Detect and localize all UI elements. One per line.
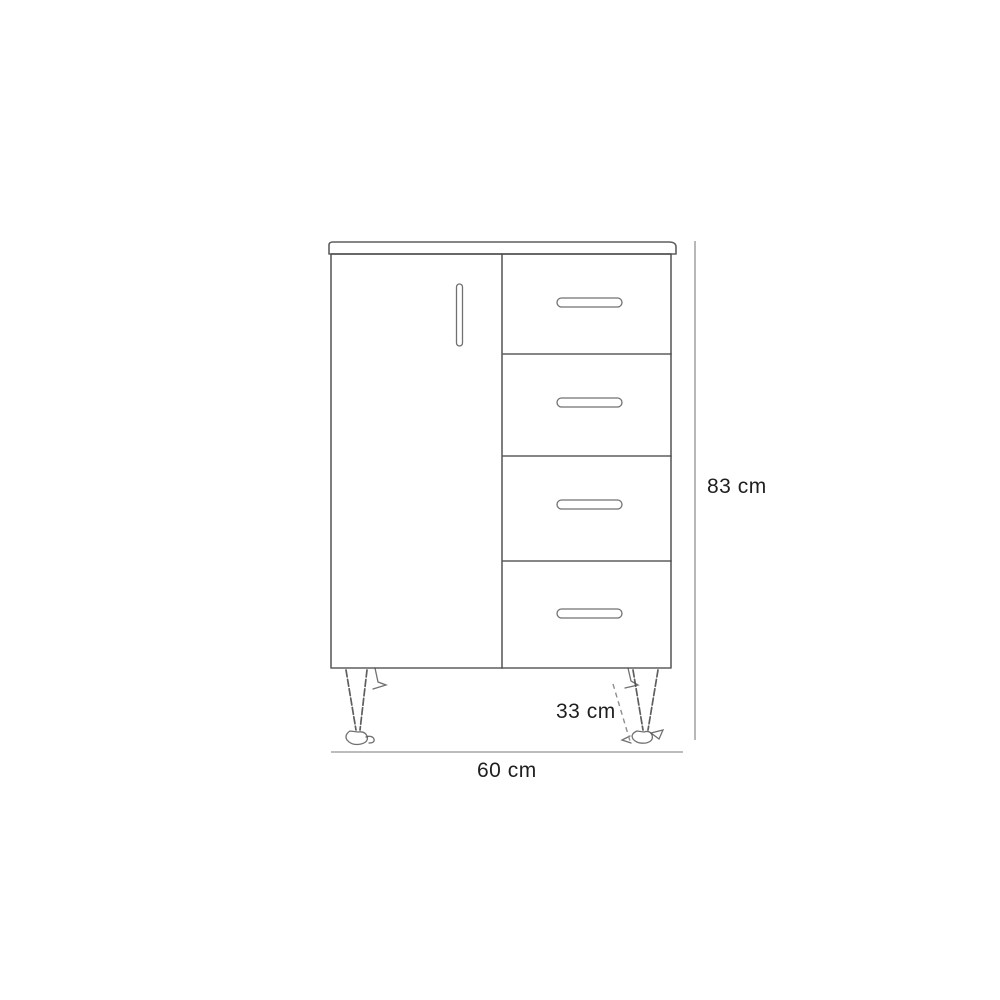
drawer-stack xyxy=(503,298,671,618)
drawer-handle xyxy=(557,298,622,307)
cabinet-door xyxy=(457,254,503,668)
drawer-handle xyxy=(557,609,622,618)
height-dimension-label: 83 cm xyxy=(707,475,767,499)
diagram-canvas: 83 cm 60 cm 33 cm xyxy=(0,0,1000,1000)
door-handle xyxy=(457,284,463,346)
leg-foot xyxy=(632,731,652,743)
drawer-handle xyxy=(557,398,622,407)
depth-dimension-label: 33 cm xyxy=(556,700,616,724)
dimension-lines xyxy=(331,241,695,752)
cabinet-leg-right xyxy=(622,668,663,743)
drawer-handle xyxy=(557,500,622,509)
cabinet-leg-left xyxy=(346,668,386,745)
cabinet-top-board xyxy=(329,242,676,254)
width-dimension-label: 60 cm xyxy=(477,759,537,783)
cabinet-body xyxy=(331,254,671,668)
cabinet-line-drawing xyxy=(0,0,1000,1000)
leg-foot xyxy=(346,731,367,745)
rear-leg-bracket xyxy=(373,668,386,689)
